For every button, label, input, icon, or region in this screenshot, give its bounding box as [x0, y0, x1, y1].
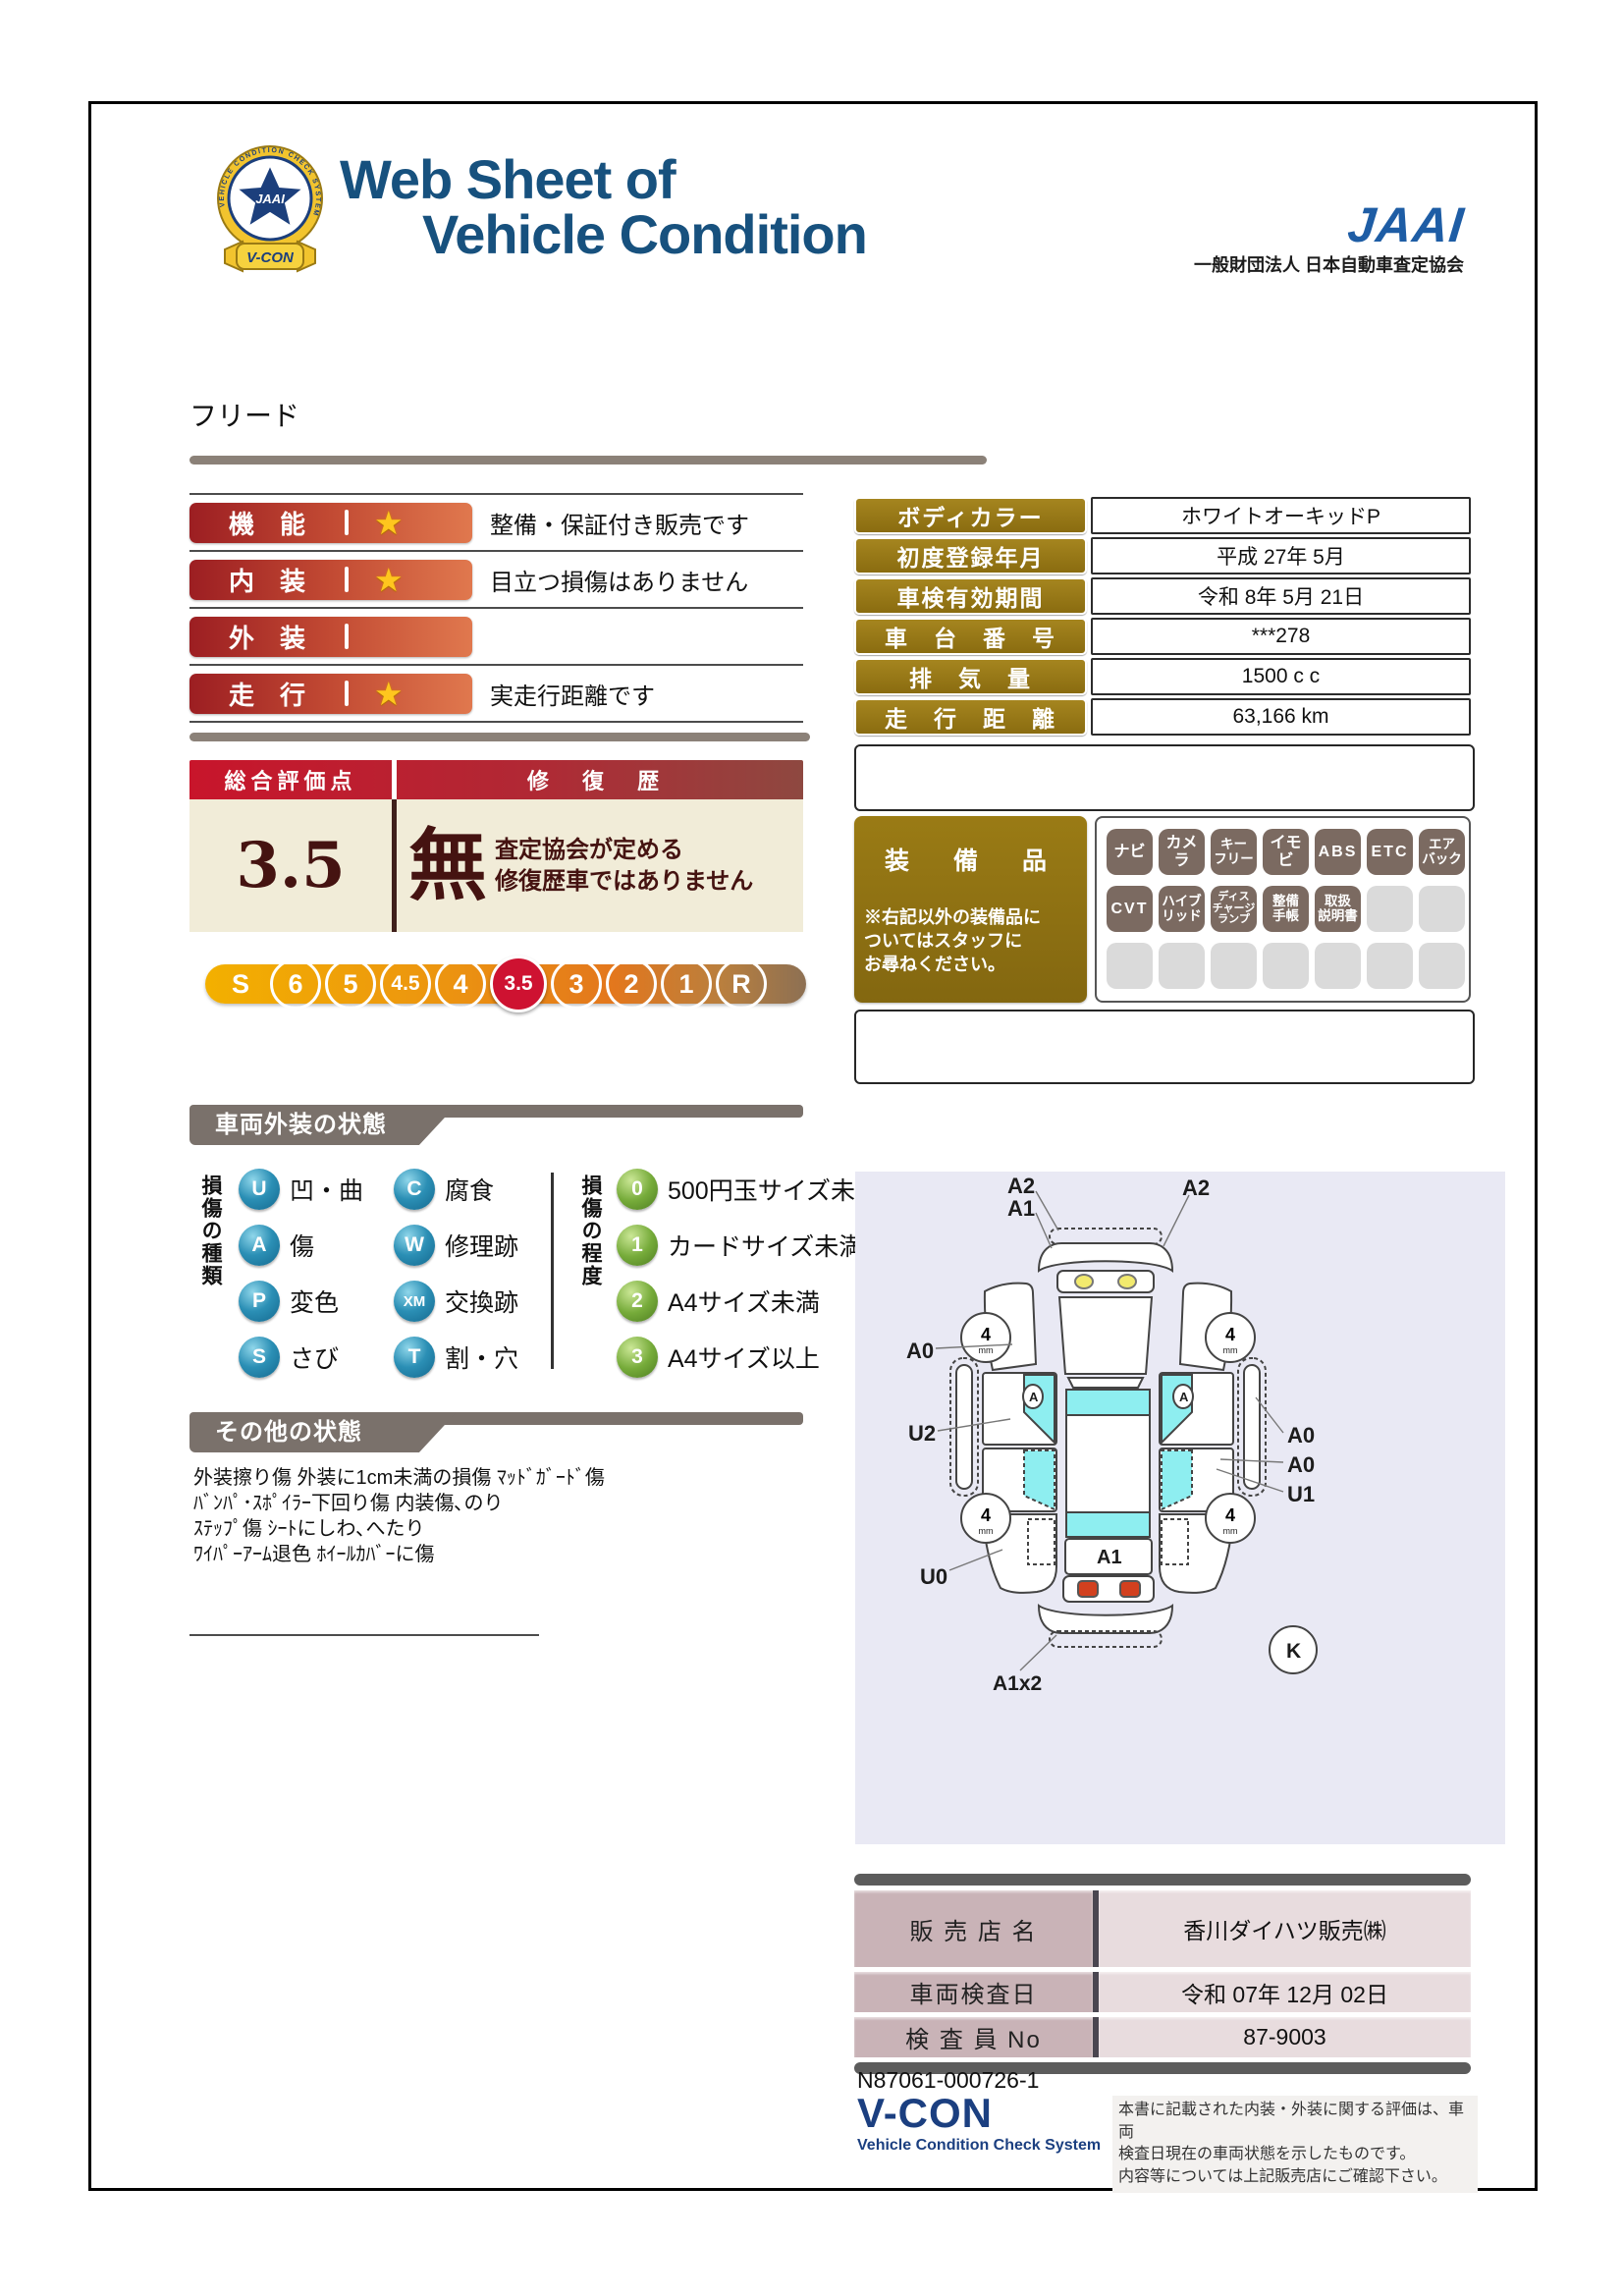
- jaai-logo: JAAI: [1137, 196, 1467, 253]
- vcon-logo: V-CON: [857, 2090, 993, 2137]
- scale-step-label: 3: [568, 969, 583, 1000]
- damage-kind-text: さび: [290, 1339, 339, 1375]
- damage-legend: 損傷の種類 U 凹・曲 C 腐食 A 傷: [195, 1169, 880, 1378]
- damage-kind-text: 凹・曲: [290, 1172, 363, 1207]
- scale-step-label: 1: [678, 969, 693, 1000]
- equipment-badge: エア バック: [1419, 829, 1465, 875]
- table-row: 走 行 距 離 63,166 km: [854, 698, 1471, 736]
- tire-tread-unit: mm: [979, 1345, 994, 1355]
- equipment-header-box: 装 備 品 ※右記以外の装備品に ついてはスタッフに お尋ねください。: [854, 816, 1087, 1003]
- equipment-badge: [1315, 943, 1361, 989]
- equipment-badge: [1419, 886, 1465, 932]
- damage-degree-item: 0 500円玉サイズ未満: [617, 1169, 880, 1210]
- overall-score-value: 3.5: [189, 799, 397, 932]
- equipment-badge: CVT: [1107, 886, 1153, 932]
- score-scale: S 6 5 4.5 4 3.5 3 2 1 R: [201, 953, 830, 1015]
- star-icon: ★: [374, 678, 404, 710]
- rating-badge: 外 装 ★: [189, 617, 472, 657]
- page-title-line2: Vehicle Condition: [422, 202, 867, 266]
- info-label: 初度登録年月: [854, 537, 1087, 574]
- badge-divider: [345, 681, 349, 706]
- damage-kind-item: T 割・穴: [394, 1337, 541, 1378]
- dealer-label: 車両検査日: [854, 1972, 1099, 2012]
- overall-score-box: 総合評価点 修 復 歴 3.5 無 査定協会が定める 修復歴車ではありません: [189, 760, 803, 932]
- dealer-table: 販 売 店 名 香川ダイハツ販売㈱ 車両検査日 令和 07年 12月 02日 検…: [854, 1874, 1471, 2074]
- sheet-border: VEHICLE CONDITION CHECK SYSTEM JAAI V-CO…: [88, 101, 1538, 2191]
- exterior-section-header: 車両外装の状態: [189, 1105, 803, 1145]
- equipment-badge: イモビ: [1263, 829, 1309, 875]
- rating-row: 機 能 ★ 整備・保証付き販売です: [189, 493, 803, 550]
- diagram-label-u0: U0: [920, 1564, 947, 1589]
- info-label: 車 台 番 号: [854, 618, 1087, 655]
- emblem-center-text: JAAI: [255, 191, 285, 206]
- damage-kind-item: W 修理跡: [394, 1225, 541, 1266]
- scale-step: 3.5: [490, 956, 547, 1012]
- tire-tread-unit: mm: [979, 1526, 994, 1536]
- dealer-label: 検 査 員 No: [854, 2017, 1099, 2057]
- diagram-label-k: K: [1286, 1640, 1301, 1663]
- emblem-ribbon-text: V-CON: [246, 249, 295, 266]
- equipment-badge: ハイブ リッド: [1159, 886, 1205, 932]
- scale-step: 4.5: [380, 958, 431, 1010]
- info-value: 63,166 km: [1091, 698, 1471, 736]
- info-value: ***278: [1091, 618, 1471, 655]
- damage-degree-list: 0 500円玉サイズ未満 1 カードサイズ未満 2 A4サイズ未満 3: [617, 1169, 880, 1378]
- diagram-door-mark-right: A: [1179, 1390, 1189, 1404]
- equipment-title: 装 備 品: [854, 842, 1087, 877]
- scale-step-label: 2: [623, 969, 638, 1000]
- tire-tread-unit: mm: [1223, 1345, 1238, 1355]
- scale-step: 2: [606, 958, 657, 1010]
- equipment-note: ※右記以外の装備品に ついてはスタッフに お尋ねください。: [864, 906, 1079, 976]
- info-label: 排 気 量: [854, 658, 1087, 695]
- damage-degree-text: 500円玉サイズ未満: [668, 1172, 880, 1207]
- rating-label: 機 能: [189, 505, 345, 541]
- rating-badge: 走 行 ★: [189, 674, 472, 714]
- scale-step: 6: [270, 958, 321, 1010]
- vcon-emblem-logo: VEHICLE CONDITION CHECK SYSTEM JAAI V-CO…: [215, 143, 325, 283]
- info-value: ホワイトオーキッドP: [1091, 497, 1471, 534]
- damage-degree-code-icon: 0: [617, 1169, 658, 1210]
- empty-note-box: [854, 1010, 1475, 1084]
- diagram-label-a2-right: A2: [1182, 1175, 1210, 1200]
- equipment-badge: 整備 手帳: [1263, 886, 1309, 932]
- scale-step-label: 6: [288, 969, 302, 1000]
- damage-degree-text: カードサイズ未満: [668, 1228, 863, 1263]
- equipment-badge: [1419, 943, 1465, 989]
- damage-degree-text: A4サイズ以上: [668, 1339, 820, 1375]
- overall-body: 3.5 無 査定協会が定める 修復歴車ではありません: [189, 799, 803, 932]
- damage-degree-item: 3 A4サイズ以上: [617, 1337, 880, 1378]
- damage-kind-code-icon: XM: [394, 1281, 435, 1322]
- badge-divider: [345, 510, 349, 535]
- tire-tread-value: 4: [981, 1505, 991, 1525]
- equipment-badge: ABS: [1315, 829, 1361, 875]
- damage-degree-text: A4サイズ未満: [668, 1284, 820, 1319]
- info-value: 平成 27年 5月: [1091, 537, 1471, 574]
- damage-degree-item: 1 カードサイズ未満: [617, 1225, 880, 1266]
- table-row: 車 台 番 号 ***278: [854, 618, 1471, 655]
- damage-kind-text: 交換跡: [445, 1284, 518, 1319]
- diagram-label-a1x2: A1x2: [993, 1672, 1042, 1695]
- damage-kind-code-icon: S: [239, 1337, 280, 1378]
- scale-step: 5: [325, 958, 376, 1010]
- equipment-badge: ディス チャージ ランプ: [1211, 886, 1257, 932]
- rating-comment: 目立つ損傷はありません: [490, 563, 748, 597]
- equipment-grid-box: ナビ カメラ キー フリー イモビ ABS ETC エア バック CVT ハイブ…: [1095, 816, 1471, 1003]
- damage-kind-text: 傷: [290, 1228, 314, 1263]
- equipment-badge: [1263, 943, 1309, 989]
- info-label: 走 行 距 離: [854, 698, 1087, 736]
- diagram-label-u1: U1: [1287, 1482, 1315, 1506]
- equipment-badge: [1107, 943, 1153, 989]
- diagram-label-u2: U2: [908, 1421, 936, 1446]
- info-label: 車検有効期間: [854, 577, 1087, 615]
- rating-row: 外 装 ★: [189, 607, 803, 664]
- damage-kind-item: C 腐食: [394, 1169, 541, 1210]
- equipment-badge: [1367, 943, 1413, 989]
- rating-list: 機 能 ★ 整備・保証付き販売です 内 装 ★ 目立つ損傷はありません: [189, 493, 803, 723]
- scale-step-label: S: [232, 969, 249, 1000]
- scale-step-label: R: [731, 969, 751, 1000]
- rating-label: 外 装: [189, 619, 345, 655]
- damage-kind-code-icon: A: [239, 1225, 280, 1266]
- scale-step-label: 3.5: [504, 972, 532, 996]
- scale-step: 3: [551, 958, 602, 1010]
- rating-label: 内 装: [189, 562, 345, 598]
- scale-step: 4: [435, 958, 486, 1010]
- equipment-grid: ナビ カメラ キー フリー イモビ ABS ETC エア バック CVT ハイブ…: [1097, 818, 1469, 1000]
- rating-row: 内 装 ★ 目立つ損傷はありません: [189, 550, 803, 607]
- damage-kind-item: S さび: [239, 1337, 386, 1378]
- scale-step: S: [215, 958, 266, 1010]
- tire-tread-unit: mm: [1223, 1526, 1238, 1536]
- equipment-badge: ナビ: [1107, 829, 1153, 875]
- info-value: 令和 8年 5月 21日: [1091, 577, 1471, 615]
- exterior-section-title: 車両外装の状態: [189, 1105, 457, 1145]
- table-row: 販 売 店 名 香川ダイハツ販売㈱: [854, 1890, 1471, 1967]
- damage-kind-code-icon: P: [239, 1281, 280, 1322]
- damage-kind-code-icon: T: [394, 1337, 435, 1378]
- damage-kind-code-icon: C: [394, 1169, 435, 1210]
- damage-kind-code-icon: W: [394, 1225, 435, 1266]
- damage-degree-label: 損傷の程度: [575, 1175, 605, 1378]
- repair-history-header: 修 復 歴: [397, 760, 803, 799]
- legend-divider: [551, 1173, 554, 1369]
- jaai-organization-name: 一般財団法人 日本自動車査定協会: [1081, 251, 1464, 277]
- divider-bar: [189, 456, 987, 465]
- table-row: ボディカラー ホワイトオーキッドP: [854, 497, 1471, 534]
- repair-history-body: 無 査定協会が定める 修復歴車ではありません: [397, 799, 803, 932]
- rating-badge: 内 装 ★: [189, 560, 472, 600]
- star-icon: ★: [374, 507, 404, 539]
- star-icon: ★: [374, 564, 404, 596]
- repair-history-mark: 無: [408, 829, 487, 903]
- equipment-badge: [1211, 943, 1257, 989]
- damage-kind-code-icon: U: [239, 1169, 280, 1210]
- scale-step-label: 5: [343, 969, 357, 1000]
- scale-step-label: 4: [453, 969, 467, 1000]
- damage-degree-item: 2 A4サイズ未満: [617, 1281, 880, 1322]
- scale-step: 1: [661, 958, 712, 1010]
- vcon-logo-subtitle: Vehicle Condition Check System: [857, 2137, 1101, 2155]
- disclaimer-text: 本書に記載された内装・外装に関する評価は、車両 検査日現在の車両状態を示したもの…: [1112, 2096, 1478, 2193]
- damage-kind-item: U 凹・曲: [239, 1169, 386, 1210]
- score-scale-items: S 6 5 4.5 4 3.5 3 2 1 R: [215, 953, 771, 1015]
- vehicle-info-table: ボディカラー ホワイトオーキッドP 初度登録年月 平成 27年 5月 車検有効期…: [854, 497, 1471, 738]
- rating-row: 走 行 ★ 実走行距離です: [189, 664, 803, 721]
- table-row: 排 気 量 1500 c c: [854, 658, 1471, 695]
- damage-kind-list: U 凹・曲 C 腐食 A 傷 W 修理跡: [239, 1169, 541, 1378]
- tire-tread-value: 4: [1225, 1325, 1235, 1344]
- damage-degree-code-icon: 3: [617, 1337, 658, 1378]
- tire-tread-value: 4: [981, 1325, 991, 1344]
- table-row: 車両検査日 令和 07年 12月 02日: [854, 1972, 1471, 2012]
- vehicle-condition-sheet: VEHICLE CONDITION CHECK SYSTEM JAAI V-CO…: [0, 0, 1623, 2296]
- equipment-badge: [1159, 943, 1205, 989]
- diagram-label-a1-left: A1: [1007, 1196, 1035, 1221]
- other-section-header: その他の状態: [189, 1412, 803, 1452]
- dealer-value: 香川ダイハツ販売㈱: [1099, 1890, 1471, 1967]
- equipment-badge: キー フリー: [1211, 829, 1257, 875]
- damage-kind-text: 修理跡: [445, 1228, 518, 1263]
- damage-kind-text: 割・穴: [445, 1339, 518, 1375]
- damage-degree-code-icon: 1: [617, 1225, 658, 1266]
- equipment-badge: 取扱 説明書: [1315, 886, 1361, 932]
- empty-note-box: [854, 744, 1475, 811]
- car-damage-diagram: A2 A1 A2 A0 U2 U0 A0 A0 U1 A1 A1x2 K A A: [855, 1172, 1505, 1844]
- table-row: 検 査 員 No 87-9003: [854, 2017, 1471, 2057]
- repair-history-note: 査定協会が定める 修復歴車ではありません: [495, 835, 753, 896]
- scale-step-label: 4.5: [391, 972, 419, 996]
- diagram-door-mark-left: A: [1029, 1390, 1039, 1404]
- badge-divider: [345, 624, 349, 649]
- info-label: ボディカラー: [854, 497, 1087, 534]
- dealer-rows: 販 売 店 名 香川ダイハツ販売㈱ 車両検査日 令和 07年 12月 02日 検…: [854, 1890, 1471, 2057]
- equipment-badge: [1367, 886, 1413, 932]
- diagram-label-a2-left: A2: [1007, 1174, 1035, 1198]
- overall-header-left: 総合評価点: [189, 760, 397, 799]
- dealer-label: 販 売 店 名: [854, 1890, 1099, 1967]
- rating-comment: 整備・保証付き販売です: [490, 506, 749, 540]
- table-row: 車検有効期間 令和 8年 5月 21日: [854, 577, 1471, 615]
- table-row: 初度登録年月 平成 27年 5月: [854, 537, 1471, 574]
- damage-kind-item: XM 交換跡: [394, 1281, 541, 1322]
- rating-comment: 実走行距離です: [490, 677, 655, 711]
- overall-header: 総合評価点 修 復 歴: [189, 760, 803, 799]
- diagram-label-a0-right1: A0: [1287, 1423, 1315, 1448]
- dealer-table-top-bar: [854, 1874, 1471, 1886]
- info-value: 1500 c c: [1091, 658, 1471, 695]
- damage-kind-item: A 傷: [239, 1225, 386, 1266]
- divider-bar: [189, 733, 810, 741]
- diagram-label-a1-tailgate: A1: [1097, 1547, 1122, 1568]
- damage-kind-item: P 変色: [239, 1281, 386, 1322]
- tire-tread-value: 4: [1225, 1505, 1235, 1525]
- damage-kind-text: 腐食: [445, 1172, 494, 1207]
- equipment-badge: ETC: [1367, 829, 1413, 875]
- other-condition-text: 外装擦り傷 外装に1cm未満の損傷 ﾏｯﾄﾞｶﾞｰﾄﾞ傷 ﾊﾞﾝﾊﾟ･ｽﾎﾟｲﾗ…: [193, 1465, 605, 1567]
- dealer-value: 令和 07年 12月 02日: [1099, 1972, 1471, 2012]
- equipment-badge: カメラ: [1159, 829, 1205, 875]
- damage-kind-label: 損傷の種類: [195, 1175, 225, 1378]
- damage-degree-code-icon: 2: [617, 1281, 658, 1322]
- rating-label: 走 行: [189, 676, 345, 712]
- diagram-label-a0-right2: A0: [1287, 1452, 1315, 1477]
- diagram-label-a0-left: A0: [906, 1339, 934, 1363]
- rating-badge: 機 能 ★: [189, 503, 472, 543]
- dealer-value: 87-9003: [1099, 2017, 1471, 2057]
- scale-step: R: [716, 958, 767, 1010]
- damage-kind-text: 変色: [290, 1284, 339, 1319]
- other-section-title: その他の状態: [189, 1412, 457, 1452]
- divider-line: [189, 1634, 539, 1636]
- vehicle-name: フリード: [189, 395, 299, 434]
- badge-divider: [345, 567, 349, 592]
